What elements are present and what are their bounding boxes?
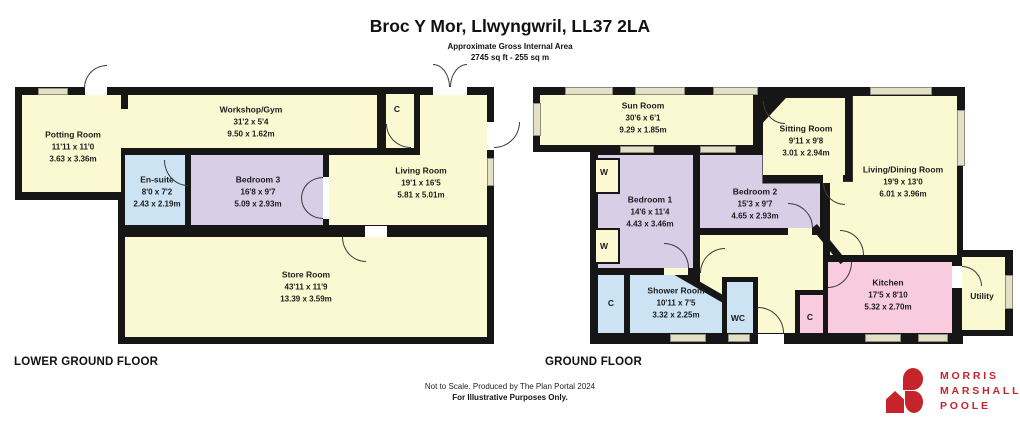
opening-potting-workshop [118, 109, 128, 148]
room-wc [727, 282, 753, 333]
room-label-living-room: Living Room 19'1 x 16'5 5.81 x 5.01m [395, 164, 446, 202]
room-label-sun-room: Sun Room 30'6 x 6'1 9.29 x 1.85m [619, 99, 666, 137]
wardrobe-label: W [600, 167, 608, 177]
window [728, 334, 750, 342]
room-label-workshop-gym: Workshop/Gym 31'2 x 5'4 9.50 x 1.62m [220, 103, 283, 141]
door-opening [952, 266, 962, 288]
cupboard-label: C [807, 312, 813, 322]
logo-text-poole: POOLE [940, 400, 991, 412]
logo-leaf-icon [905, 391, 923, 413]
room-label-shower-room: Shower Room 10'11 x 7'5 3.32 x 2.25m [647, 284, 704, 322]
footer-illustrative: For Illustrative Purposes Only. [0, 393, 1020, 402]
room-label-bedroom-2: Bedroom 2 15'3 x 9'7 4.65 x 2.93m [731, 185, 778, 223]
utility-label: Utility [970, 291, 994, 301]
window [870, 87, 932, 95]
window [533, 103, 541, 136]
cupboard-label: C [394, 104, 400, 114]
room-label-en-suite: En-suite 8'0 x 7'2 2.43 x 2.19m [133, 173, 180, 211]
window [865, 334, 901, 342]
door-arc [433, 64, 450, 87]
window [38, 88, 68, 95]
window [1005, 275, 1013, 309]
logo-text-marshall: MARSHALL [940, 385, 1020, 397]
door-opening [758, 334, 784, 344]
window [565, 87, 613, 95]
door-opening [823, 175, 843, 183]
door-arc [450, 64, 467, 87]
room-label-bedroom-1: Bedroom 1 14'6 x 11'4 4.43 x 3.46m [626, 193, 673, 231]
door-opening [365, 226, 387, 237]
cupboard-label: C [608, 298, 614, 308]
window [635, 87, 685, 95]
door-opening [433, 87, 467, 95]
floorplan-page: Broc Y Mor, Llwyngwril, LL37 2LA Approxi… [0, 0, 1020, 423]
door-opening [85, 87, 107, 95]
ground-floor-label: GROUND FLOOR [545, 356, 642, 368]
wardrobe-label: W [600, 241, 608, 251]
window [487, 158, 494, 186]
door-arc [84, 65, 107, 88]
room-label-potting-room: Potting Room 11'11 x 11'0 3.63 x 3.36m [45, 128, 101, 166]
footer-disclaimer: Not to Scale. Produced by The Plan Porta… [0, 382, 1020, 391]
lower-floor-label: LOWER GROUND FLOOR [14, 356, 158, 368]
window [713, 87, 758, 95]
door-opening [487, 122, 494, 150]
logo-text-morris: MORRIS [940, 370, 999, 382]
room-label-living-dining-room: Living/Dining Room 19'9 x 13'0 6.01 x 3.… [863, 163, 943, 201]
window [670, 334, 706, 342]
page-area: 2745 sq ft - 255 sq m [0, 53, 1020, 62]
door-arc [494, 122, 520, 148]
window [957, 110, 965, 166]
door-opening [788, 228, 812, 235]
logo-drop-icon [903, 368, 923, 390]
window [918, 334, 948, 342]
wc-label: WC [731, 313, 745, 323]
window [620, 146, 654, 153]
room-label-bedroom-3: Bedroom 3 16'8 x 9'7 5.09 x 2.93m [234, 173, 281, 211]
room-label-store-room: Store Room 43'11 x 11'9 13.39 x 3.59m [280, 268, 332, 306]
window [700, 146, 736, 153]
room-label-sitting-room: Sitting Room 9'11 x 9'8 3.01 x 2.94m [780, 122, 833, 160]
page-subtitle: Approximate Gross Internal Area [0, 42, 1020, 51]
page-title: Broc Y Mor, Llwyngwril, LL37 2LA [0, 16, 1020, 37]
door-opening [323, 177, 329, 219]
door-opening [664, 268, 688, 275]
room-label-kitchen: Kitchen 17'5 x 8'10 5.32 x 2.70m [864, 276, 911, 314]
